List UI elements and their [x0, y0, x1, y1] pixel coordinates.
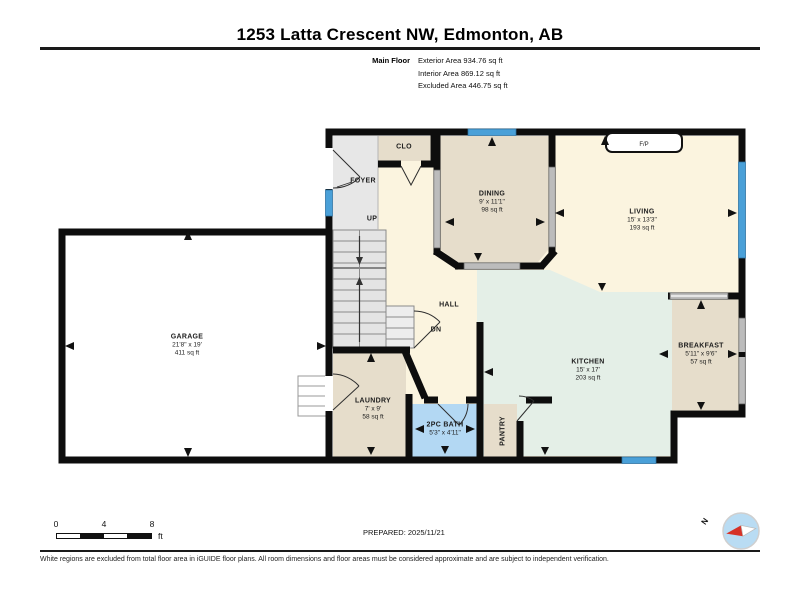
garage-label: GARAGE	[171, 334, 204, 341]
scale-bar-segment	[127, 534, 151, 538]
dining-bay-window-bottom	[464, 263, 520, 270]
compass	[723, 513, 759, 549]
bath-label: 2PC BATH	[427, 422, 464, 429]
kitchen-window	[622, 457, 656, 464]
dining-top-window	[468, 129, 516, 136]
kitchen-dims: 15' x 17'	[576, 367, 600, 374]
exterior-cutout	[677, 417, 757, 463]
pantry-label: PANTRY	[500, 416, 507, 446]
living-area: 193 sq ft	[630, 225, 655, 232]
living-label: LIVING	[629, 209, 654, 216]
hall-label: HALL	[439, 302, 459, 309]
garage-dims: 21'8" x 19'	[172, 342, 202, 349]
closet-label: CLO	[396, 144, 412, 151]
laundry-dims: 7' x 9'	[365, 406, 382, 413]
breakfast-area: 57 sq ft	[690, 359, 711, 366]
prepared-date: PREPARED: 2025/11/21	[363, 528, 445, 537]
breakfast-dims: 5'11" x 9'6"	[685, 351, 717, 358]
laundry-label: LAUNDRY	[355, 398, 391, 405]
dining-bay-window-left	[434, 170, 441, 248]
bath-dims: 5'3" x 4'11"	[429, 430, 461, 437]
kitchen-area: 203 sq ft	[576, 375, 601, 382]
laundry-area: 58 sq ft	[362, 414, 383, 421]
living-dims: 15' x 13'3"	[627, 217, 657, 224]
scale-tick-8: 8	[150, 519, 155, 529]
floor-plan-page: 1253 Latta Crescent NW, Edmonton, AB Mai…	[0, 0, 800, 600]
scale-bar	[56, 533, 152, 539]
dining-label: DINING	[479, 191, 505, 198]
stairs-up-label: UP	[367, 216, 377, 223]
dining-dims: 9' x 11'1"	[479, 199, 505, 206]
fireplace-label: F/P	[639, 142, 648, 148]
living-window	[739, 162, 746, 258]
floor-plan-drawing	[0, 0, 800, 600]
scale-bar-segment	[80, 534, 104, 538]
footer-divider	[40, 550, 760, 552]
stairs-dn-label: DN	[431, 327, 442, 334]
front-door-opening	[325, 148, 333, 189]
dining-bay-window-right	[549, 167, 556, 247]
dining-area: 98 sq ft	[481, 207, 502, 214]
garage-area: 411 sq ft	[175, 350, 199, 357]
foyer-label: FOYER	[350, 178, 376, 185]
foyer-window	[326, 190, 333, 216]
scale-unit: ft	[158, 531, 163, 541]
kitchen-label: KITCHEN	[571, 359, 604, 366]
disclaimer-text: White regions are excluded from total fl…	[40, 556, 760, 563]
scale-tick-4: 4	[102, 519, 107, 529]
breakfast-window-mullion	[739, 352, 746, 357]
breakfast-label: BREAKFAST	[678, 343, 723, 350]
garage-door-opening	[325, 376, 333, 411]
scale-tick-0: 0	[54, 519, 59, 529]
breakfast-window	[739, 318, 746, 404]
